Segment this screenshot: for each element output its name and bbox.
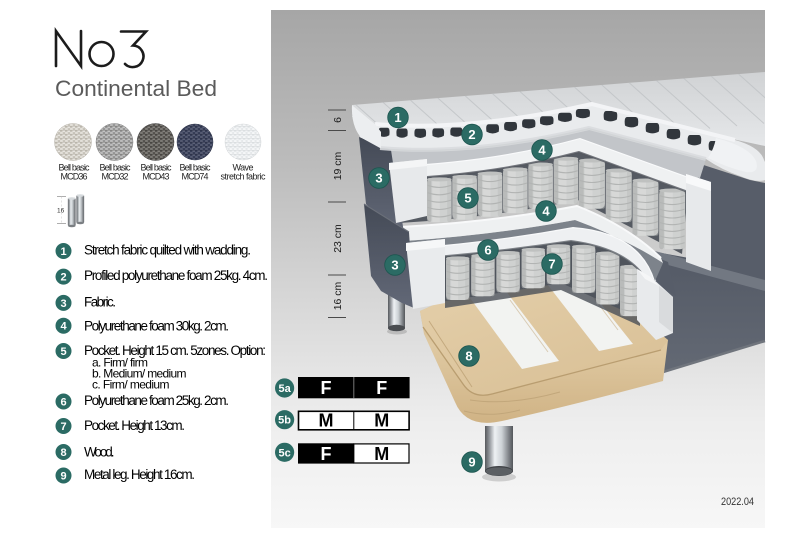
svg-text:23 cm: 23 cm [332, 224, 344, 253]
svg-text:4: 4 [542, 204, 550, 219]
svg-text:6: 6 [332, 117, 344, 123]
svg-text:5: 5 [464, 191, 471, 206]
svg-text:5b: 5b [278, 415, 291, 427]
svg-text:M: M [374, 411, 389, 431]
svg-text:M: M [374, 444, 389, 464]
svg-text:7: 7 [548, 257, 555, 272]
svg-text:F: F [376, 378, 387, 398]
svg-text:F: F [321, 378, 332, 398]
svg-text:stretch fabric: stretch fabric [221, 172, 267, 182]
svg-text:Continental Bed: Continental Bed [55, 76, 217, 101]
svg-text:MCD32: MCD32 [102, 172, 129, 182]
svg-text:7: 7 [60, 421, 66, 433]
svg-text:5: 5 [60, 346, 66, 358]
svg-text:Stretch fabric quilted with wa: Stretch fabric quilted with wadding. [84, 243, 251, 258]
svg-text:Profiled polyurethane foam 25k: Profiled polyurethane foam 25kg. 4cm. [84, 268, 268, 283]
svg-text:9: 9 [468, 455, 475, 470]
svg-text:19 cm: 19 cm [332, 151, 344, 180]
svg-text:5a: 5a [278, 383, 291, 395]
svg-text:16 cm: 16 cm [332, 281, 344, 310]
svg-text:M: M [319, 411, 334, 431]
svg-text:2022.04: 2022.04 [721, 496, 754, 508]
svg-text:16: 16 [57, 208, 65, 215]
svg-text:2: 2 [60, 272, 66, 284]
svg-text:9: 9 [60, 471, 66, 483]
svg-text:MCD36: MCD36 [61, 172, 88, 182]
svg-text:MCD74: MCD74 [182, 172, 209, 182]
svg-text:1: 1 [60, 246, 66, 258]
svg-text:8: 8 [465, 349, 472, 364]
svg-text:Wood.: Wood. [84, 445, 115, 460]
svg-text:Pocket. Height 13cm.: Pocket. Height 13cm. [84, 418, 185, 433]
svg-text:4: 4 [60, 321, 67, 333]
svg-text:Polyurethane foam 30kg. 2cm.: Polyurethane foam 30kg. 2cm. [84, 319, 229, 334]
svg-text:c. Firm/ medium: c. Firm/ medium [92, 378, 170, 392]
svg-text:4: 4 [538, 143, 546, 158]
svg-text:8: 8 [60, 447, 66, 459]
svg-text:1: 1 [394, 110, 401, 125]
svg-text:Fabric.: Fabric. [84, 295, 116, 310]
svg-text:F: F [321, 444, 332, 464]
svg-text:2: 2 [468, 127, 475, 142]
svg-text:Polyurethane foam 25kg. 2cm.: Polyurethane foam 25kg. 2cm. [84, 393, 229, 408]
svg-text:3: 3 [391, 258, 398, 273]
svg-text:5c: 5c [278, 447, 290, 459]
svg-text:6: 6 [60, 397, 66, 409]
svg-text:Metal leg. Height 16cm.: Metal leg. Height 16cm. [84, 467, 195, 482]
svg-text:6: 6 [484, 243, 491, 258]
svg-text:MCD43: MCD43 [143, 172, 170, 182]
svg-text:3: 3 [375, 171, 382, 186]
svg-text:3: 3 [60, 298, 66, 310]
